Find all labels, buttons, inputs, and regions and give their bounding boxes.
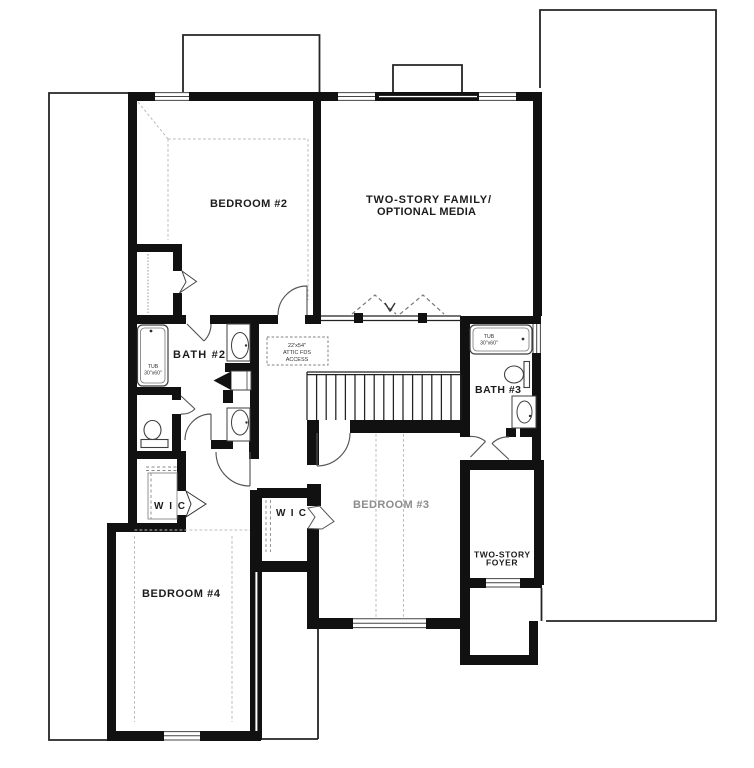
svg-text:ATTIC FDS: ATTIC FDS	[283, 350, 311, 356]
svg-text:TUB: TUB	[148, 364, 159, 370]
svg-text:BEDROOM #3: BEDROOM #3	[353, 499, 429, 511]
svg-text:22'x54": 22'x54"	[288, 343, 306, 349]
svg-text:BATH #3: BATH #3	[475, 384, 521, 396]
svg-text:ACCESS: ACCESS	[286, 357, 309, 363]
svg-text:BATH #2: BATH #2	[173, 349, 225, 361]
svg-text:BEDROOM #4: BEDROOM #4	[142, 588, 221, 600]
svg-text:30"x60": 30"x60"	[144, 371, 162, 377]
svg-text:TWO-STORY FAMILY/: TWO-STORY FAMILY/	[366, 194, 491, 206]
svg-text:W I C: W I C	[154, 501, 185, 512]
svg-text:30"x60": 30"x60"	[480, 341, 498, 347]
svg-text:BEDROOM #2: BEDROOM #2	[210, 198, 287, 210]
svg-text:W I C: W I C	[276, 508, 306, 519]
svg-text:OPTIONAL MEDIA: OPTIONAL MEDIA	[377, 206, 476, 218]
svg-text:FOYER: FOYER	[486, 558, 518, 568]
svg-text:TUB: TUB	[484, 334, 495, 340]
